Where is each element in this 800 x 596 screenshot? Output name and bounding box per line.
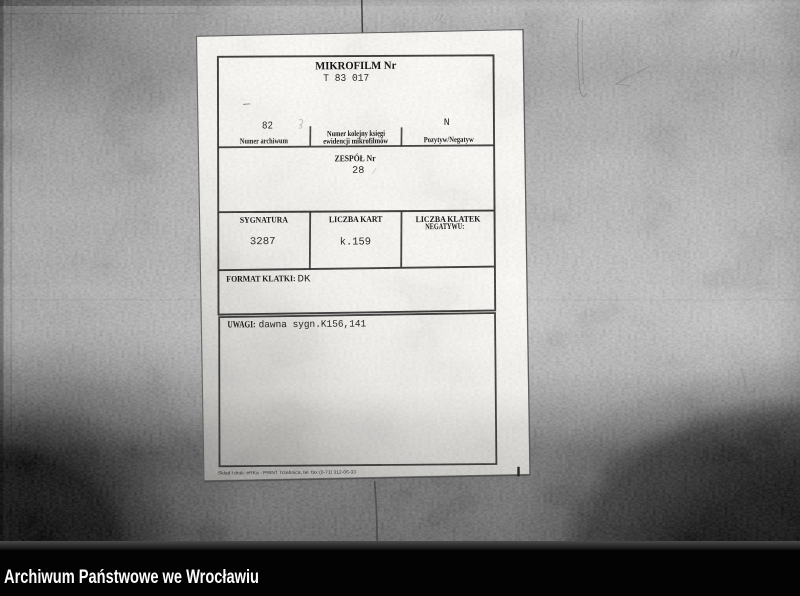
svg-text:Archiwum Państwowe we Wrocławi: Archiwum Państwowe we Wrocławiu [4, 566, 259, 588]
